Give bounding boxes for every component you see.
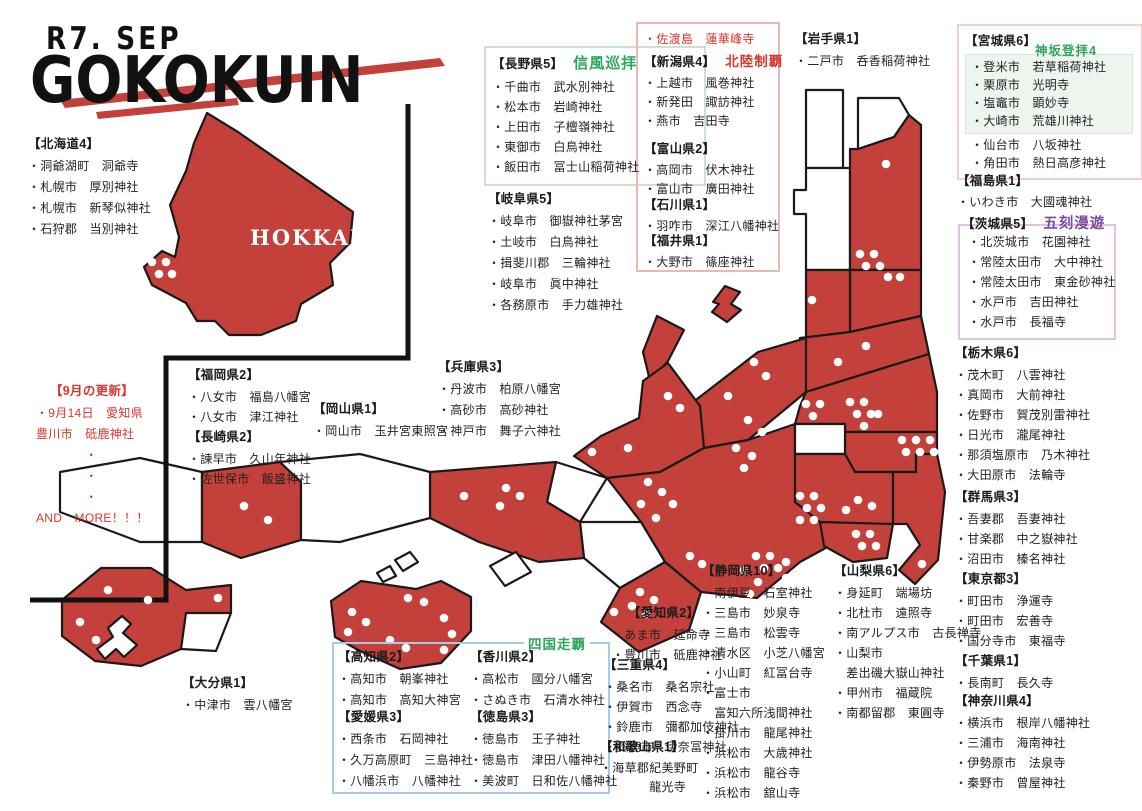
list-item: ・北茨城市 花園神社 xyxy=(968,232,1116,252)
list-header: 【岐阜県5】 xyxy=(488,188,623,207)
prefecture-cell-visited xyxy=(144,113,353,335)
list-fukushima: 【福島県1】 ・いわき市 大國魂神社 xyxy=(957,170,1092,212)
shrine-location-dot xyxy=(348,608,357,617)
list-header: 【高知県2】 xyxy=(338,646,461,665)
shrine-list: ・上越市 風巻神社・新発田 諏訪神社・燕市 吉田寺 xyxy=(644,74,783,131)
shrine-location-dot xyxy=(912,436,921,445)
shrine-location-dot xyxy=(168,270,177,279)
shrine-location-dot xyxy=(724,392,733,401)
list-fukui: 【福井県1】 ・大野市 篠座神社 xyxy=(644,230,755,272)
list-header: 【北海道4】 xyxy=(28,133,151,152)
shrine-location-dot xyxy=(796,492,805,501)
list-header: 【和歌山県1】 xyxy=(600,736,698,755)
shrine-list: ・八女市 福島八幡宮・八女市 津江神社 xyxy=(188,387,311,427)
list-header: 【岩手県1】 xyxy=(795,28,930,47)
list-item: ・土岐市 白鳥神社 xyxy=(488,232,623,253)
list-item: ・石狩郡 当別神社 xyxy=(28,219,151,240)
list-item: ・高知市 朝峯神社 xyxy=(338,669,461,690)
shrine-location-dot xyxy=(854,496,863,505)
shrine-location-dot xyxy=(76,618,85,627)
shrine-list: ・二戸市 呑香稲荷神社 xyxy=(795,51,930,71)
list-header: 【富山県2】 xyxy=(644,138,755,157)
list-item: ・南アルプス市 古長禅寺 xyxy=(834,623,981,643)
shrine-location-dot xyxy=(652,514,661,523)
list-niigata: 【新潟県4】北陸制覇 ・上越市 風巻神社・新発田 諏訪神社・燕市 吉田寺 xyxy=(644,50,783,131)
shrine-location-dot xyxy=(809,412,818,421)
shrine-location-dot xyxy=(144,596,153,605)
shrine-location-dot xyxy=(502,484,511,493)
list-item: ・上越市 風巻神社 xyxy=(644,74,783,93)
shrine-location-dot xyxy=(92,636,101,645)
shrine-location-dot xyxy=(860,398,869,407)
list-item: ・飯田市 冨士山稲荷神社 xyxy=(492,157,640,177)
shrine-list: ・千曲市 武水別神社・松本市 岩崎神社・上田市 子檀嶺神社・東御市 白鳥神社・飯… xyxy=(492,77,640,177)
shrine-location-dot xyxy=(448,630,457,639)
list-item: ・南伊豆 石室神社 xyxy=(702,583,825,603)
list-tokushima: 【徳島県3】 ・徳島市 王子神社・徳島市 津田八幡神社・美波町 日和佐八幡神社 xyxy=(470,706,618,792)
list-item: ・いわき市 大國魂神社 xyxy=(957,193,1092,212)
shrine-location-dot xyxy=(744,416,753,425)
list-hokkaido: 【北海道4】 ・洞爺湖町 洞爺寺・札幌市 厚別神社・札幌市 新琴似神社・石狩郡 … xyxy=(28,133,151,240)
shrine-location-dot xyxy=(460,492,469,501)
shrine-list: ・高知市 朝峯神社・高知市 高知大神宮 xyxy=(338,669,461,711)
list-item: ・9月14日 愛知県 xyxy=(36,403,186,424)
list-item: ・小山町 紅冨台寺 xyxy=(702,663,825,683)
shrine-location-dot xyxy=(870,250,879,259)
shrine-location-dot xyxy=(440,614,449,623)
shrine-location-dot xyxy=(148,258,157,267)
shrine-location-dot xyxy=(686,552,695,561)
shrine-location-dot xyxy=(404,594,413,603)
shrine-list: ・岐阜市 御嶽神社茅宮・土岐市 白鳥神社・揖斐川郡 三輪神社・岐阜市 眞中神社・… xyxy=(488,211,623,316)
list-okayama: 【岡山県1】 ・岡山市 玉井宮東照宮 xyxy=(313,398,448,442)
shrine-location-dot xyxy=(810,492,819,501)
list-item: ・清水区 小芝八幡宮 xyxy=(702,643,825,663)
shrine-location-dot xyxy=(676,404,685,413)
shrine-location-dot xyxy=(858,542,867,551)
list-miyagi-inner: ・登米市 若草稲荷神社・栗原市 光明寺・塩竈市 顕妙寺・大崎市 荒雄川神社 xyxy=(971,58,1106,130)
list-item: ・諫早市 久山年神社 xyxy=(188,449,311,469)
shrine-location-dot xyxy=(846,398,855,407)
shrine-location-dot xyxy=(856,250,865,259)
list-header: 【岡山県1】 xyxy=(313,398,448,417)
list-item: ・北杜市 遠照寺 xyxy=(834,603,981,623)
list-item: ・新発田 諏訪神社 xyxy=(644,93,783,112)
shrine-location-dot xyxy=(796,516,805,525)
shrine-location-dot xyxy=(624,444,633,453)
list-item: ・揖斐川郡 三輪神社 xyxy=(488,253,623,274)
shrine-list: ・岡山市 玉井宮東照宮 xyxy=(313,421,448,442)
list-item: ・ xyxy=(36,445,186,466)
list-header: 【石川県1】 xyxy=(644,194,779,213)
prefecture-cell-unvisited xyxy=(377,566,396,582)
list-header: 【山梨県6】 xyxy=(834,560,981,579)
list-item: ・西条市 石岡神社 xyxy=(338,729,473,750)
page: HOKKAIDO R7. SEP GOKOKUIN 神坂登拝4 四国走覇 【北海… xyxy=(0,0,1142,811)
list-item: ・中津市 雲八幡宮 xyxy=(182,695,293,716)
shrine-location-dot xyxy=(420,598,429,607)
shrine-list: ・南伊豆 石室神社・三島市 妙泉寺・三島市 松雲寺・清水区 小芝八幡宮・小山町 … xyxy=(702,583,825,803)
list-yamanashi: 【山梨県6】 ・身延町 端場坊・北杜市 遠照寺・南アルプス市 古長禅寺・山梨市 … xyxy=(834,560,981,723)
list-item: ・東御市 白鳥神社 xyxy=(492,137,640,157)
list-fukuoka: 【福岡県2】 ・八女市 福島八幡宮・八女市 津江神社 xyxy=(188,364,311,427)
shrine-location-dot xyxy=(766,552,775,561)
shrine-location-dot xyxy=(876,262,885,271)
list-item: ・常陸太田市 東金砂神社 xyxy=(968,272,1116,292)
list-item: ・徳島市 津田八幡神社 xyxy=(470,750,618,771)
list-item: ・真岡市 大前神社 xyxy=(955,385,1090,405)
shrine-location-dot xyxy=(868,502,877,511)
shrine-location-dot xyxy=(750,358,759,367)
update-header: 【9月の更新】 xyxy=(36,380,186,399)
badge-nagano: 信風巡拝 xyxy=(573,52,637,73)
badge-niigata: 北陸制覇 xyxy=(725,50,783,70)
list-item: ・神戸市 舞子六神社 xyxy=(438,421,561,442)
shrine-location-dot xyxy=(808,296,817,305)
shrine-location-dot xyxy=(636,588,645,597)
list-item: ・伊勢原市 法泉寺 xyxy=(955,753,1090,773)
list-header: 【宮城県6】 xyxy=(965,30,1036,49)
list-iwate: 【岩手県1】 ・二戸市 呑香稲荷神社 xyxy=(795,28,930,71)
list-header: 【群馬県3】 xyxy=(955,486,1078,505)
list-item: ・丹波市 柏原八幡宮 xyxy=(438,379,561,400)
hokkaido-label: HOKKAIDO xyxy=(250,225,402,250)
list-item: ・大野市 篠座神社 xyxy=(644,253,755,272)
list-item: ・二戸市 呑香稲荷神社 xyxy=(795,51,930,71)
shrine-location-dot xyxy=(155,270,164,279)
list-oita: 【大分県1】 ・中津市 雲八幡宮 xyxy=(182,672,293,716)
shrine-location-dot xyxy=(853,410,862,419)
list-item: ・甘楽郡 中之嶽神社 xyxy=(955,529,1078,549)
shrine-location-dot xyxy=(669,500,678,509)
list-item: ・高松市 國分八幡宮 xyxy=(470,669,605,690)
list-item: ・岐阜市 御嶽神社茅宮 xyxy=(488,211,623,232)
shrine-location-dot xyxy=(214,594,223,603)
list-item: ・海草郡紀美野町 xyxy=(600,759,698,778)
list-miyagi-header: 【宮城県6】 xyxy=(965,30,1036,53)
shrine-location-dot xyxy=(264,516,273,525)
prefecture-cell-unvisited xyxy=(395,552,418,571)
list-item: ・塩竈市 顕妙寺 xyxy=(971,94,1106,112)
update-note: 【9月の更新】 ・9月14日 愛知県豊川市 砥鹿神社 ・ ・ ・AND MORE… xyxy=(36,380,186,529)
list-ehime: 【愛媛県3】 ・西条市 石岡神社・久万高原町 三島神社・八幡浜市 八幡神社 xyxy=(338,706,473,792)
shrine-location-dot xyxy=(803,504,812,513)
list-shizuoka: 【静岡県10】 ・南伊豆 石室神社・三島市 妙泉寺・三島市 松雲寺・清水区 小芝… xyxy=(702,560,825,803)
shrine-list: ・いわき市 大國魂神社 xyxy=(957,193,1092,212)
shrine-location-dot xyxy=(588,448,597,457)
list-header: 【福井県1】 xyxy=(644,230,755,249)
list-item: ・南都留郡 東圓寺 xyxy=(834,703,981,723)
shrine-location-dot xyxy=(860,422,869,431)
list-item: 差出磯大嶽山神社 xyxy=(834,663,981,683)
list-item: ・八女市 福島八幡宮 xyxy=(188,387,311,407)
list-hyogo: 【兵庫県3】 ・丹波市 柏原八幡宮・高砂市 高砂神社・神戸市 舞子六神社 xyxy=(438,356,561,442)
shrine-list: ・徳島市 王子神社・徳島市 津田八幡神社・美波町 日和佐八幡神社 xyxy=(470,729,618,792)
list-item: 豊川市 砥鹿神社 xyxy=(36,424,186,445)
list-item: 富知六所浅間神社 xyxy=(702,703,825,723)
list-item: ・八幡浜市 八幡神社 xyxy=(338,771,473,792)
list-item: ・常陸太田市 大中神社 xyxy=(968,252,1116,272)
shrine-location-dot xyxy=(748,452,757,461)
shrine-list: ・佐渡島 蓮華峰寺 xyxy=(644,30,755,49)
shrine-location-dot xyxy=(862,262,871,271)
shrine-list: ・身延町 端場坊・北杜市 遠照寺・南アルプス市 古長禅寺・山梨市 差出磯大嶽山神… xyxy=(834,583,981,723)
list-item: ・美波町 日和佐八幡神社 xyxy=(470,771,618,792)
list-item: ・三島市 松雲寺 xyxy=(702,623,825,643)
list-header: 【福岡県2】 xyxy=(188,364,311,383)
list-item: ・栗原市 光明寺 xyxy=(971,76,1106,94)
list-header: 【長崎県2】 xyxy=(188,426,311,445)
update-lines: ・9月14日 愛知県豊川市 砥鹿神社 ・ ・ ・AND MORE！！！ xyxy=(36,403,186,529)
shrine-list: ・登米市 若草稲荷神社・栗原市 光明寺・塩竈市 顕妙寺・大崎市 荒雄川神社 xyxy=(971,58,1106,130)
shrine-location-dot xyxy=(516,492,525,501)
list-item: ・岡山市 玉井宮東照宮 xyxy=(313,421,448,442)
shrine-location-dot xyxy=(762,372,771,381)
shrine-list: ・仙台市 八坂神社・角田市 熱日高彦神社 xyxy=(971,136,1106,172)
shrine-location-dot xyxy=(816,400,825,409)
list-sado-note: ・佐渡島 蓮華峰寺 xyxy=(644,30,755,49)
shrine-list: ・西条市 石岡神社・久万高原町 三島神社・八幡浜市 八幡神社 xyxy=(338,729,473,792)
list-item: ・洞爺湖町 洞爺寺 xyxy=(28,156,151,177)
shrine-location-dot xyxy=(874,410,883,419)
shrine-location-dot xyxy=(162,258,171,267)
shrine-location-dot xyxy=(902,448,911,457)
shrine-list: ・丹波市 柏原八幡宮・高砂市 高砂神社・神戸市 舞子六神社 xyxy=(438,379,561,442)
list-ibaraki: ・北茨城市 花園神社・常陸太田市 大中神社・常陸太田市 東金砂神社・水戸市 吉田… xyxy=(968,232,1116,332)
list-item: ・仙台市 八坂神社 xyxy=(971,136,1106,154)
list-item: ・日光市 瀧尾神社 xyxy=(955,425,1090,445)
list-tochigi: 【栃木県6】 ・茂木町 八雲神社・真岡市 大前神社・佐野市 賀茂別雷神社・日光市… xyxy=(955,342,1090,485)
shrine-location-dot xyxy=(104,586,113,595)
list-item: ・各務原市 手力雄神社 xyxy=(488,295,623,316)
prefecture-cell-unvisited xyxy=(181,613,231,651)
list-item: ・佐野市 賀茂別雷神社 xyxy=(955,405,1090,425)
list-header: 【静岡県10】 xyxy=(702,560,825,579)
shrine-location-dot xyxy=(758,428,767,437)
shrine-location-dot xyxy=(344,628,353,637)
shrine-list: ・北茨城市 花園神社・常陸太田市 大中神社・常陸太田市 東金砂神社・水戸市 吉田… xyxy=(968,232,1116,332)
list-item: ・那須塩原市 乃木神社 xyxy=(955,445,1090,465)
shrine-location-dot xyxy=(866,530,875,539)
shrine-location-dot xyxy=(896,273,905,282)
shrine-location-dot xyxy=(802,400,811,409)
shrine-list: ・茂木町 八雲神社・真岡市 大前神社・佐野市 賀茂別雷神社・日光市 瀧尾神社・那… xyxy=(955,365,1090,485)
list-header: 【長野県5】 xyxy=(492,53,563,72)
list-item: ・千曲市 武水別神社 xyxy=(492,77,640,97)
list-item: ・身延町 端場坊 xyxy=(834,583,981,603)
badge-miyagi: 神坂登拝4 xyxy=(1035,40,1097,59)
list-item: ・浜松市 大歳神社 xyxy=(702,743,825,763)
shrine-location-dot xyxy=(637,500,646,509)
list-item: ・浜松市 舘山寺 xyxy=(702,783,825,803)
list-item: ・山梨市 xyxy=(834,643,981,663)
shrine-list: ・洞爺湖町 洞爺寺・札幌市 厚別神社・札幌市 新琴似神社・石狩郡 当別神社 xyxy=(28,156,151,240)
list-nagano: 【長野県5】信風巡拝 ・千曲市 武水別神社・松本市 岩崎神社・上田市 子檀嶺神社… xyxy=(492,52,640,177)
list-item: ・高砂市 高砂神社 xyxy=(438,400,561,421)
list-header: 【大分県1】 xyxy=(182,672,293,691)
shrine-location-dot xyxy=(240,502,249,511)
shrine-location-dot xyxy=(752,552,761,561)
shrine-location-dot xyxy=(732,444,741,453)
list-item: ・佐世保市 飯盛神社 xyxy=(188,469,311,489)
list-item: 龍光寺 xyxy=(600,778,698,797)
shrine-location-dot xyxy=(658,488,667,497)
shrine-list: ・横浜市 根岸八幡神社・三浦市 海南神社・伊勢原市 法泉寺・秦野市 曾屋神社 xyxy=(955,713,1090,793)
prefecture-cell-unvisited xyxy=(794,168,850,270)
list-item: AND MORE！！！ xyxy=(36,508,186,529)
shrine-location-dot xyxy=(496,502,505,511)
list-item: ・徳島市 王子神社 xyxy=(470,729,618,750)
shrine-location-dot xyxy=(852,530,861,539)
shrine-location-dot xyxy=(362,618,371,627)
prefecture-cell-unvisited xyxy=(795,424,845,454)
list-header: 【香川県2】 xyxy=(470,646,605,665)
list-item: ・久万高原町 三島神社 xyxy=(338,750,473,771)
list-item: ・三島市 妙泉寺 xyxy=(702,603,825,623)
list-kochi: 【高知県2】 ・高知市 朝峯神社・高知市 高知大神宮 xyxy=(338,646,461,711)
shrine-list: ・海草郡紀美野町 龍光寺 xyxy=(600,759,698,797)
shrine-location-dot xyxy=(834,358,843,367)
list-item: ・上田市 子檀嶺神社 xyxy=(492,117,640,137)
list-item: ・水戸市 吉田神社 xyxy=(968,292,1116,312)
shrine-location-dot xyxy=(862,342,871,351)
shrine-list: ・大野市 篠座神社 xyxy=(644,253,755,272)
list-header: 【新潟県4】 xyxy=(644,51,715,70)
prefecture-cell-visited xyxy=(712,286,741,322)
prefecture-cell-unvisited xyxy=(806,90,843,168)
list-item: ・札幌市 厚別神社 xyxy=(28,177,151,198)
list-item: ・佐渡島 蓮華峰寺 xyxy=(644,30,755,49)
list-item: ・茂木町 八雲神社 xyxy=(955,365,1090,385)
list-item: ・大田原市 法輪寺 xyxy=(955,465,1090,485)
shrine-location-dot xyxy=(882,160,891,169)
shrine-location-dot xyxy=(817,504,826,513)
list-item: ・掛川市 龍尾神社 xyxy=(702,723,825,743)
list-item: ・八女市 津江神社 xyxy=(188,407,311,427)
list-item: ・三浦市 海南神社 xyxy=(955,733,1090,753)
list-item: ・大崎市 荒雄川神社 xyxy=(971,112,1106,130)
shrine-location-dot xyxy=(664,392,673,401)
list-header: 【栃木県6】 xyxy=(955,342,1090,361)
list-kagawa: 【香川県2】 ・高松市 國分八幡宮・さぬき市 石清水神社 xyxy=(470,646,605,711)
shrine-list: ・諫早市 久山年神社・佐世保市 飯盛神社 xyxy=(188,449,311,489)
list-item: ・浜松市 龍谷寺 xyxy=(702,763,825,783)
shrine-location-dot xyxy=(644,478,653,487)
list-header: 【徳島県3】 xyxy=(470,706,618,725)
page-title: GOKOKUIN xyxy=(30,44,363,118)
shrine-location-dot xyxy=(810,516,819,525)
list-item: ・甲州市 福蔵院 xyxy=(834,683,981,703)
list-item: ・吾妻郡 吾妻神社 xyxy=(955,509,1078,529)
list-item: ・松本市 岩崎神社 xyxy=(492,97,640,117)
list-item: ・燕市 吉田寺 xyxy=(644,112,783,131)
shrine-location-dot xyxy=(916,448,925,457)
list-gunma: 【群馬県3】 ・吾妻郡 吾妻神社・甘楽郡 中之嶽神社・沼田市 榛名神社 xyxy=(955,486,1078,569)
list-item: ・岐阜市 眞中神社 xyxy=(488,274,623,295)
list-wakayama: 【和歌山県1】 ・海草郡紀美野町 龍光寺 xyxy=(600,736,698,797)
shrine-location-dot xyxy=(740,464,749,473)
list-item: ・水戸市 長福寺 xyxy=(968,312,1116,332)
list-item: ・札幌市 新琴似神社 xyxy=(28,198,151,219)
list-item: ・富士市 xyxy=(702,683,825,703)
list-header: 【愛媛県3】 xyxy=(338,706,473,725)
shrine-location-dot xyxy=(926,436,935,445)
list-item: ・高岡市 伏木神社 xyxy=(644,161,755,180)
shrine-location-dot xyxy=(898,436,907,445)
shrine-location-dot xyxy=(930,448,939,457)
shrine-list: ・高松市 國分八幡宮・さぬき市 石清水神社 xyxy=(470,669,605,711)
prefecture-cell-visited xyxy=(820,522,893,562)
shrine-location-dot xyxy=(872,542,881,551)
list-header: 【福島県1】 xyxy=(957,170,1092,189)
list-item: ・登米市 若草稲荷神社 xyxy=(971,58,1106,76)
list-miyagi-rest: ・仙台市 八坂神社・角田市 熱日高彦神社 xyxy=(971,136,1106,172)
list-gifu: 【岐阜県5】 ・岐阜市 御嶽神社茅宮・土岐市 白鳥神社・揖斐川郡 三輪神社・岐阜… xyxy=(488,188,623,316)
badge-ibaraki: 五刻漫遊 xyxy=(1043,212,1105,233)
list-header: 【茨城県5】 xyxy=(962,213,1033,232)
list-nagasaki: 【長崎県2】 ・諫早市 久山年神社・佐世保市 飯盛神社 xyxy=(188,426,311,489)
shrine-location-dot xyxy=(842,506,851,515)
list-item: ・ xyxy=(36,466,186,487)
list-header: 【兵庫県3】 xyxy=(438,356,561,375)
shrine-location-dot xyxy=(884,273,893,282)
list-toyama: 【富山県2】 ・高岡市 伏木神社・富山市 廣田神社 xyxy=(644,138,755,199)
shrine-list: ・中津市 雲八幡宮 xyxy=(182,695,293,716)
list-item: ・秦野市 曾屋神社 xyxy=(955,773,1090,793)
list-item: ・ xyxy=(36,487,186,508)
